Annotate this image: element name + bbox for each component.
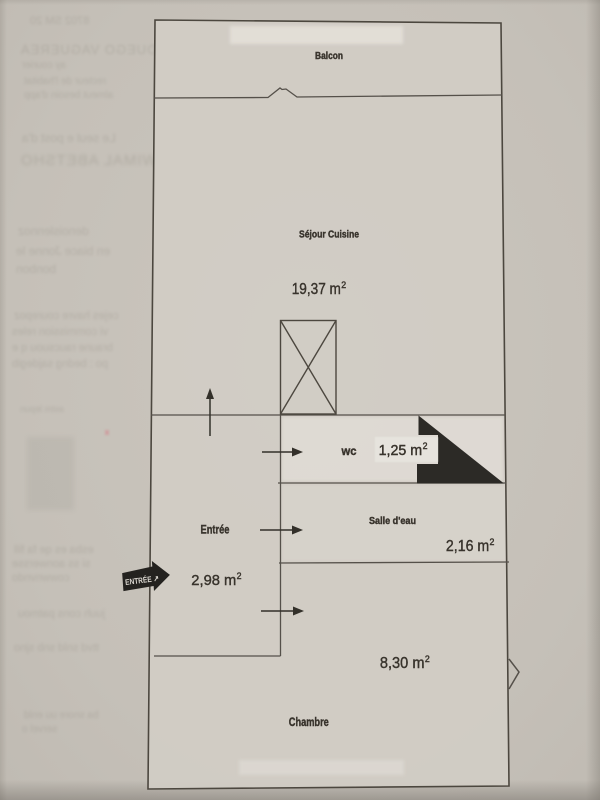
svg-text:wc: wc: [341, 444, 357, 458]
svg-text:19,37 m: 19,37 m: [292, 281, 341, 298]
svg-text:2: 2: [341, 280, 346, 290]
svg-text:2: 2: [237, 571, 242, 581]
svg-text:2: 2: [490, 537, 495, 547]
svg-text:Séjour Cuisine: Séjour Cuisine: [299, 230, 359, 241]
svg-text:Salle d'eau: Salle d'eau: [369, 516, 416, 527]
svg-text:2: 2: [425, 654, 430, 664]
svg-text:Entrée: Entrée: [201, 523, 230, 537]
svg-text:8,30 m: 8,30 m: [380, 655, 425, 672]
svg-text:1,25 m: 1,25 m: [379, 443, 423, 459]
svg-text:2,16 m: 2,16 m: [446, 538, 489, 555]
svg-text:Chambre: Chambre: [289, 715, 329, 729]
svg-text:Balcon: Balcon: [315, 51, 343, 62]
svg-text:2: 2: [423, 441, 428, 451]
svg-text:2,98 m: 2,98 m: [191, 572, 236, 589]
